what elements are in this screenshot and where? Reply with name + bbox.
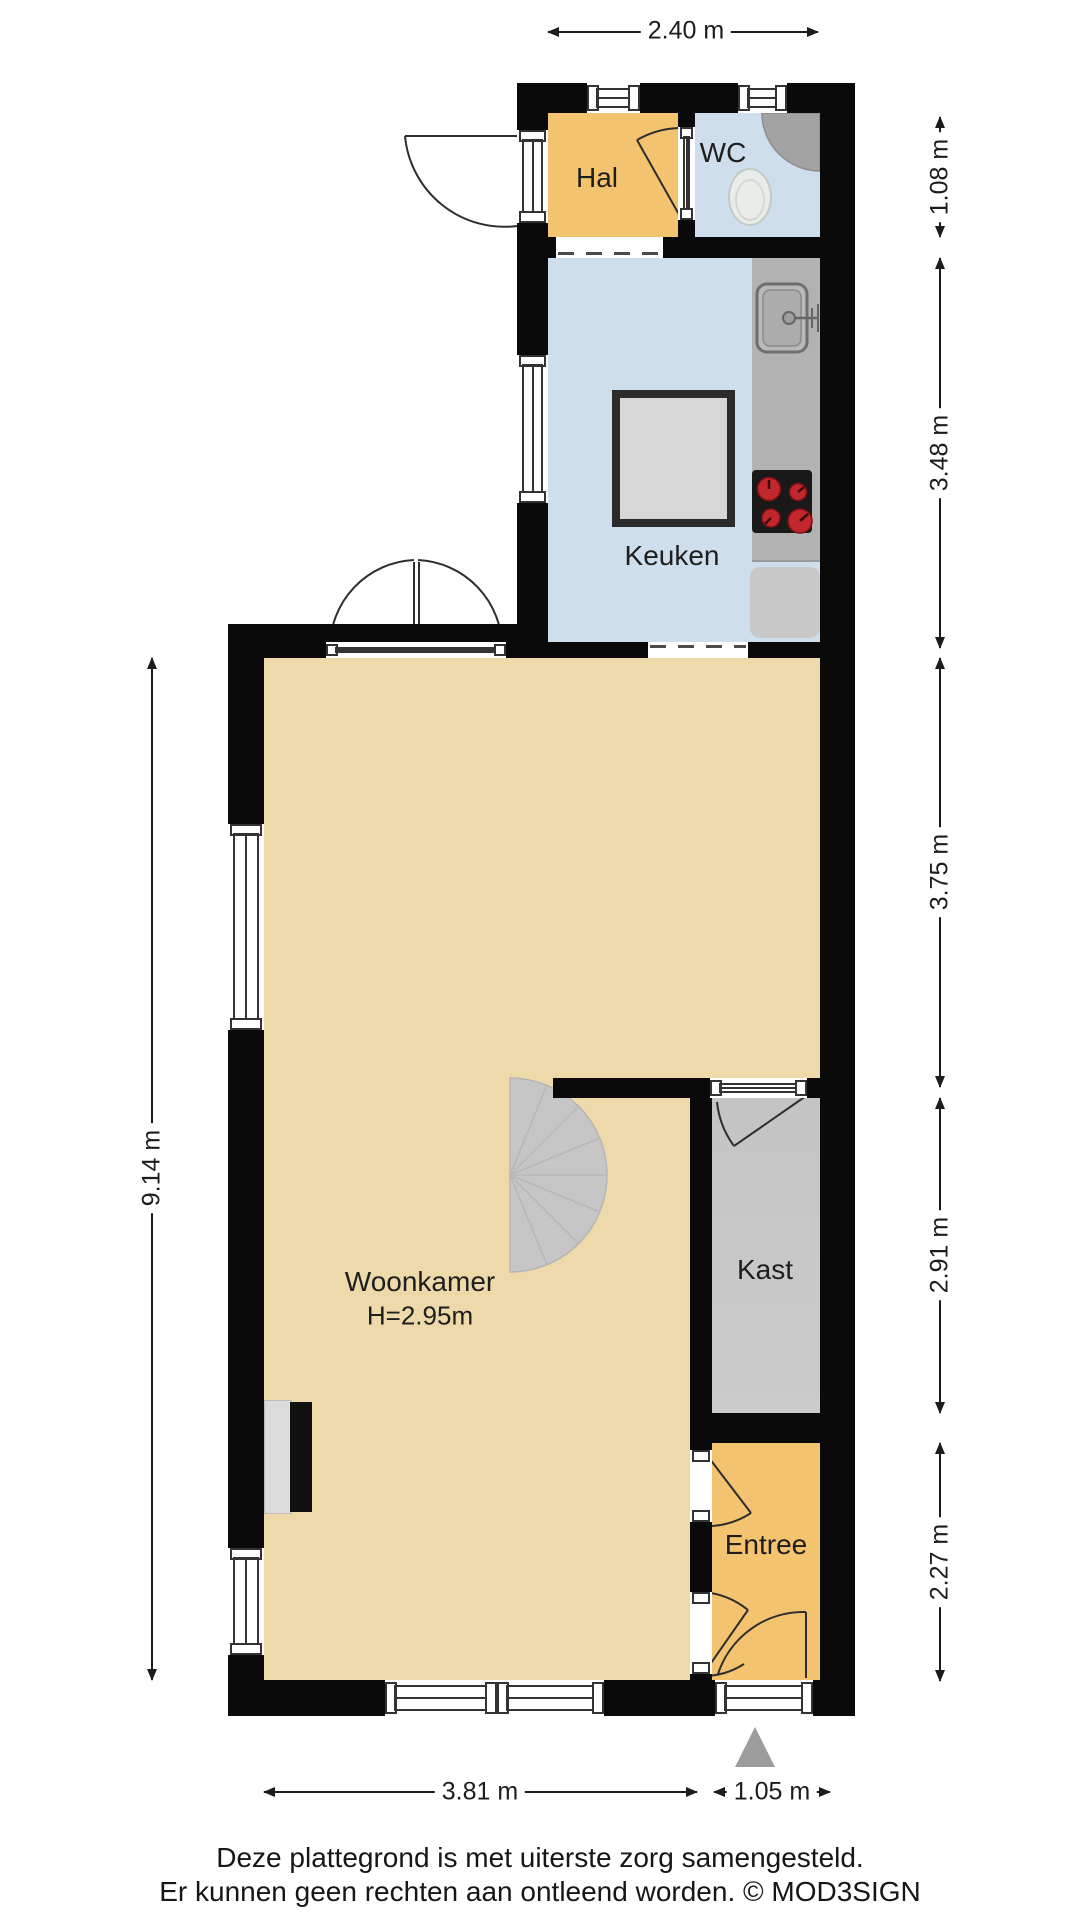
wall-keuken-left-upper (517, 258, 548, 355)
chimney-breast-black (290, 1402, 312, 1512)
room-label-woonkamer: Woonkamer (345, 1266, 495, 1298)
hal-wc-door-opening (678, 127, 695, 220)
dim-text-right-1: 1.08 m (925, 132, 956, 222)
spiral-stairs-icon (510, 1078, 607, 1272)
room-label-hal: Hal (576, 162, 618, 194)
wall-hal-keuken-left (517, 237, 556, 258)
dim-text-left: 9.14 m (137, 1123, 168, 1213)
wall-keuken-left-lower (517, 503, 548, 624)
wall-entree-left-2 (690, 1522, 712, 1592)
dim-text-bottom-left: 3.81 m (435, 1777, 525, 1808)
wall-hal-wc-divider-bottom (678, 220, 695, 237)
kast-door-opening (710, 1078, 807, 1098)
room-label-woonkamer-height: H=2.95m (367, 1301, 473, 1332)
wall-bottom-left (228, 1680, 385, 1716)
hal-exterior-door-opening (517, 130, 548, 223)
hal-keuken-open-passage (556, 237, 663, 258)
wall-woonkamer-kast-vertical (690, 1098, 712, 1413)
window-woonkamer-left-lower (228, 1548, 264, 1655)
dim-text-bottom-right: 1.05 m (727, 1777, 817, 1808)
room-label-wc: WC (700, 137, 747, 169)
kitchen-table (616, 394, 731, 523)
window-keuken-left (517, 355, 548, 503)
toilet-icon (729, 169, 771, 225)
wall-bottom-right-stub (813, 1680, 820, 1716)
room-label-entree: Entree (725, 1529, 808, 1561)
kitchen-sink-icon (757, 284, 818, 352)
kast-door-swing (717, 1096, 806, 1146)
dim-text-top: 2.40 m (641, 16, 731, 47)
front-door-opening (715, 1680, 813, 1716)
window-top-hal (587, 83, 640, 113)
chimney-breast-gray (264, 1400, 292, 1514)
dim-text-right-2: 3.48 m (925, 408, 956, 498)
wall-bottom-middle (604, 1680, 715, 1716)
window-woonkamer-left-upper (228, 824, 264, 1030)
window-bottom-right-pane (497, 1680, 604, 1716)
window-bottom-left-pane (385, 1680, 497, 1716)
entree-upper-door-opening (690, 1450, 712, 1522)
wall-left-middle (228, 1030, 264, 1548)
wall-hal-left-upper (517, 83, 548, 130)
wall-keuken-bottom-right (748, 642, 820, 658)
hal-exterior-door-swing (405, 136, 517, 227)
wall-keuken-bottom-left (548, 642, 648, 658)
hal-wc-door-swing (637, 128, 681, 218)
wall-top (517, 83, 855, 113)
north-arrow-icon (735, 1727, 775, 1767)
stove-icon (752, 470, 812, 533)
dim-text-right-5: 2.27 m (925, 1517, 956, 1607)
window-top-wc (738, 83, 787, 113)
front-door-swing (718, 1612, 806, 1678)
footer-disclaimer-line2: Er kunnen geen rechten aan ontleend word… (0, 1876, 1080, 1908)
wall-woonkamer-kast-horizontal (553, 1078, 712, 1098)
room-label-kast: Kast (737, 1254, 793, 1286)
wall-entree-left-1 (690, 1443, 712, 1450)
room-label-keuken: Keuken (625, 540, 720, 572)
wall-left-upper (228, 624, 264, 824)
wall-right (820, 83, 855, 1716)
floorplan-page: Hal WC Keuken Woonkamer H=2.95m Kast Ent… (0, 0, 1080, 1920)
wall-kast-door-stub (807, 1078, 820, 1098)
corner-sink-icon (762, 113, 820, 171)
wall-wc-keuken (663, 237, 855, 258)
dim-text-right-3: 3.75 m (925, 827, 956, 917)
wall-hal-wc-divider-top (678, 113, 695, 127)
keuken-woonkamer-open-passage (648, 642, 748, 658)
dim-text-right-4: 2.91 m (925, 1210, 956, 1300)
footer-disclaimer-line1: Deze plattegrond is met uiterste zorg sa… (0, 1842, 1080, 1874)
wall-kast-entree (690, 1413, 820, 1443)
french-doors-sill (326, 642, 506, 658)
entree-lower-door-opening (690, 1592, 712, 1674)
